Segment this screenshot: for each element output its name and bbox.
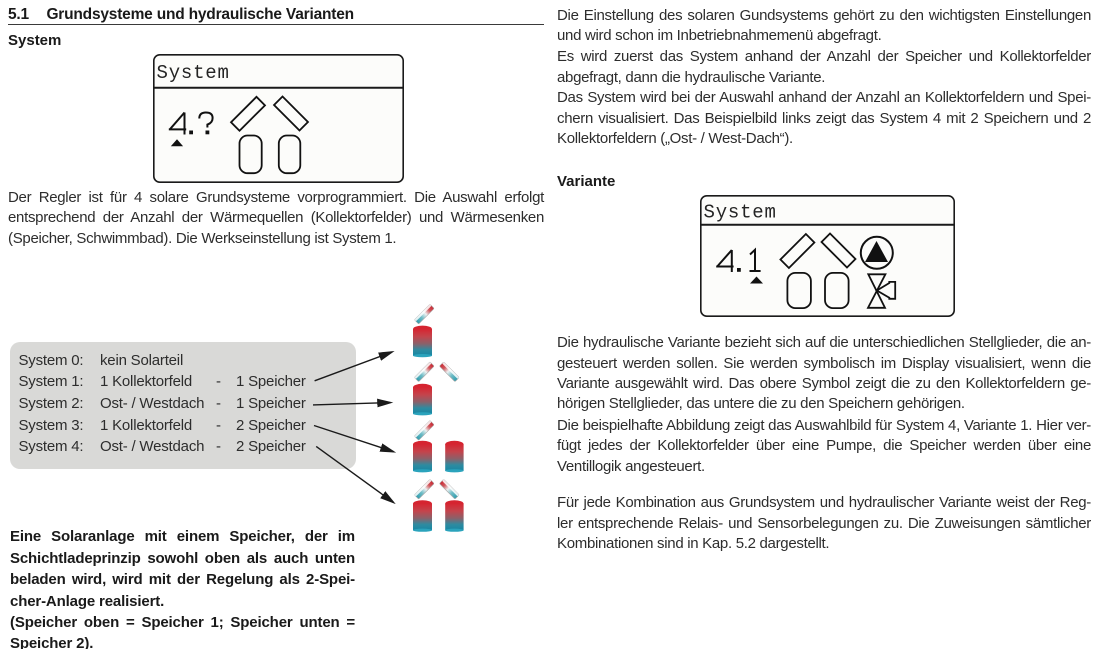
svg-text:System: System	[704, 201, 777, 223]
svg-text:System: System	[157, 62, 230, 84]
